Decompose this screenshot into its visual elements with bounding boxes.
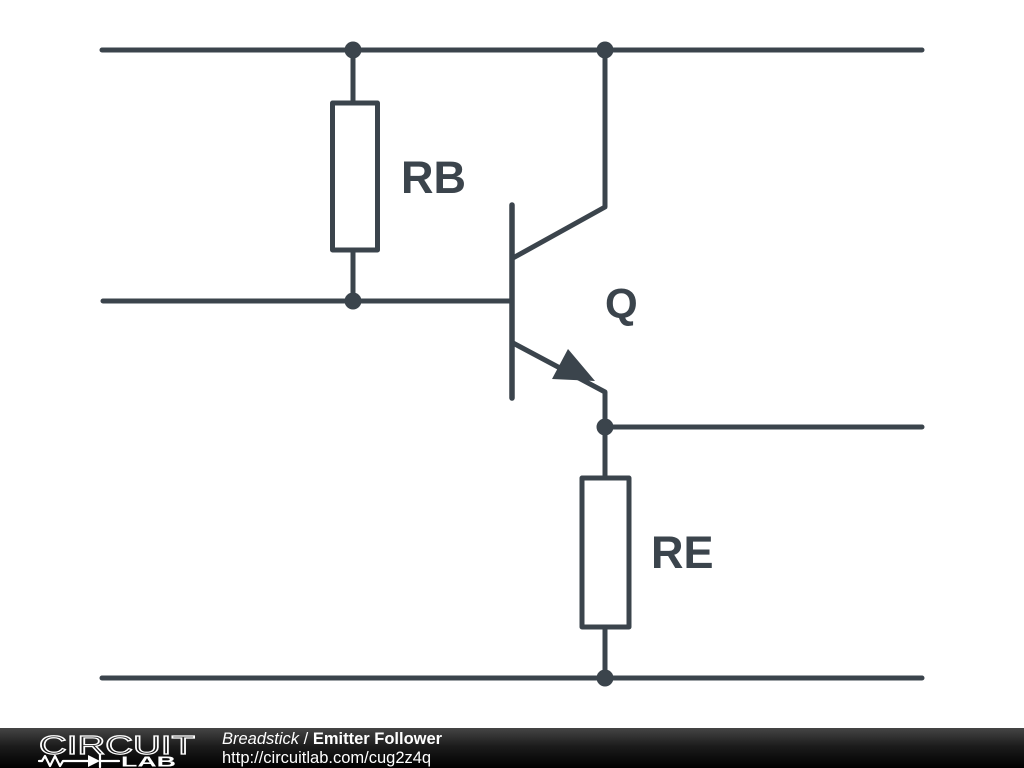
junction-dot [597, 419, 614, 436]
collector-lead [513, 50, 605, 258]
junction-dot [597, 670, 614, 687]
junction-dot [345, 42, 362, 59]
schematic: RB Q RE [102, 42, 922, 687]
schematic-canvas: RB Q RE [0, 0, 1024, 728]
circuitlab-logo: CIRCUIT LAB [36, 729, 206, 768]
schematic-url: http://circuitlab.com/cug2z4q [222, 749, 442, 768]
author-name: Breadstick [222, 730, 299, 748]
rb-label: RB [401, 152, 466, 203]
junction-dot [345, 293, 362, 310]
transistor-Q: Q [512, 50, 638, 427]
schematic-title-line: Breadstick / Emitter Follower [222, 730, 442, 749]
resistor-body-icon [582, 478, 629, 627]
junction-dot [597, 42, 614, 59]
branding-footer-bar: CIRCUIT LAB Breadstick / Emitter Followe… [0, 728, 1024, 768]
schematic-title: Emitter Follower [313, 730, 442, 748]
resistor-RE: RE [582, 427, 714, 678]
resistor-RB: RB [333, 50, 467, 301]
logo-wordmark-lab: LAB [121, 754, 176, 768]
circuit-svg: RB Q RE [0, 0, 1024, 728]
resistor-body-icon [333, 103, 378, 250]
re-label: RE [651, 527, 714, 578]
schematic-meta: Breadstick / Emitter Follower http://cir… [222, 730, 442, 767]
emitter-lead [513, 343, 605, 427]
title-separator: / [304, 730, 309, 748]
q-label: Q [605, 280, 638, 327]
